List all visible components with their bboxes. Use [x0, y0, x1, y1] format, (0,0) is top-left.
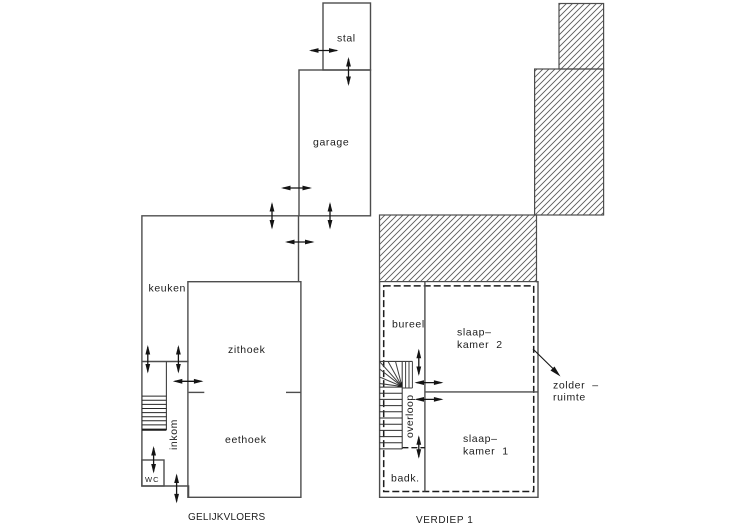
svg-text:kamer 1: kamer 1	[463, 446, 509, 458]
svg-text:VERDIEP 1: VERDIEP 1	[416, 515, 473, 526]
svg-text:WC: WC	[145, 475, 160, 484]
svg-text:kamer 2: kamer 2	[457, 339, 503, 351]
svg-text:slaap–: slaap–	[457, 327, 492, 339]
svg-text:garage: garage	[313, 137, 349, 149]
svg-text:ruimte: ruimte	[553, 392, 586, 404]
svg-text:zithoek: zithoek	[228, 344, 266, 356]
svg-text:badk.: badk.	[391, 473, 420, 485]
svg-text:bureel: bureel	[392, 319, 425, 331]
svg-text:inkom: inkom	[168, 419, 180, 450]
svg-text:slaap–: slaap–	[463, 433, 498, 445]
svg-text:GELIJKVLOERS: GELIJKVLOERS	[188, 512, 266, 523]
svg-text:zolder –: zolder –	[553, 380, 599, 392]
svg-text:eethoek: eethoek	[225, 434, 267, 446]
svg-text:stal: stal	[337, 33, 356, 45]
svg-text:keuken: keuken	[149, 283, 186, 295]
svg-text:overloop: overloop	[404, 395, 416, 438]
